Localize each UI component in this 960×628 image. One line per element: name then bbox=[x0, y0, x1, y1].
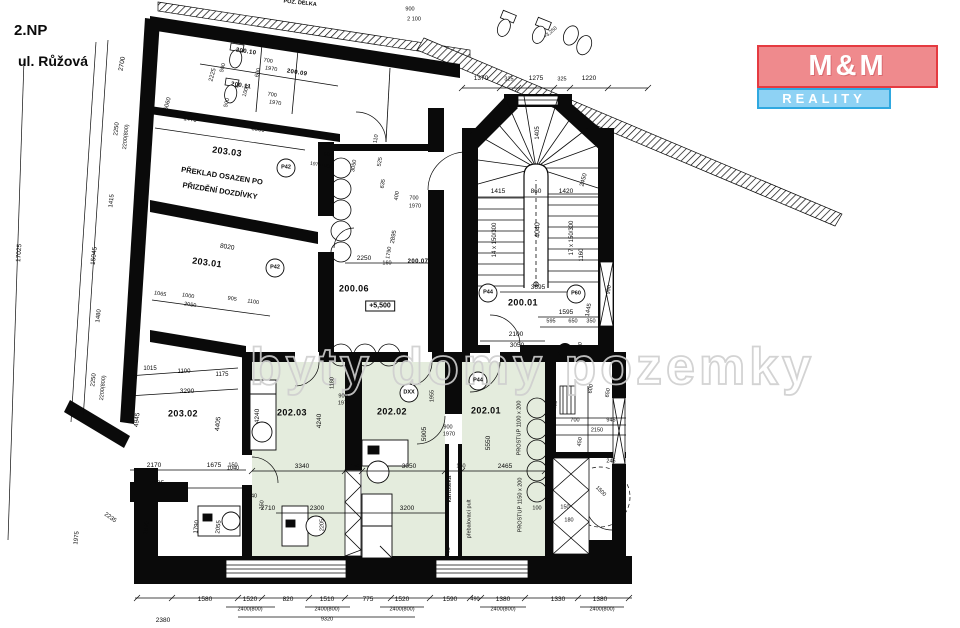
agency-logo: M&M REALITY bbox=[757, 45, 938, 109]
floor-label: 2.NP bbox=[14, 22, 47, 39]
logo-reality-text: REALITY bbox=[757, 88, 891, 109]
watermark-text: byty domy pozemky bbox=[250, 338, 815, 396]
street-label: ul. Růžová bbox=[18, 53, 88, 69]
logo-mm-text: M&M bbox=[757, 45, 938, 88]
floor-plan-page: byty domy pozemky 203.03203.01203.02202.… bbox=[0, 0, 960, 628]
